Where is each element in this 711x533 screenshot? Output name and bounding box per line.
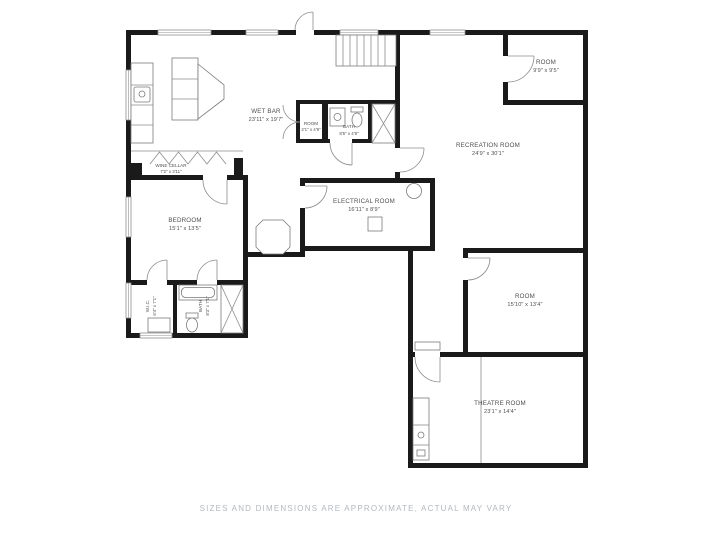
door-arcs	[147, 12, 534, 382]
room-name: THEATRE ROOM	[474, 400, 526, 407]
floor-plan-drawing: WET BAR 23'11" x 19'7" ROOM 2'1" x 4'9" …	[0, 0, 711, 533]
room-label-recreation: RECREATION ROOM 24'9" x 30'1"	[456, 142, 520, 157]
room-dims: 24'9" x 30'1"	[472, 151, 504, 157]
room-name: ROOM	[515, 293, 535, 300]
room-name: WINE CELLAR	[155, 163, 187, 168]
wic-dresser	[148, 318, 170, 332]
closet-x-lower	[221, 285, 243, 333]
room-name: ELECTRICAL ROOM	[333, 198, 395, 205]
room-label-theatre: THEATRE ROOM 23'1" x 14'4"	[474, 400, 526, 415]
room-name: WET BAR	[251, 108, 281, 115]
room-label-wine-cellar: WINE CELLAR 7'2" x 3'11"	[155, 163, 187, 174]
room-name: W.I.C.	[145, 300, 150, 313]
room-label-room-mid-right: ROOM 15'10" x 13'4"	[507, 293, 542, 308]
room-label-closet-room: ROOM 2'1" x 4'9"	[301, 121, 321, 132]
floor-plan-page: WET BAR 23'11" x 19'7" ROOM 2'1" x 4'9" …	[0, 0, 711, 533]
stairs	[336, 35, 396, 66]
bath-lower-toilet-icon	[186, 313, 198, 332]
kitchen-counter	[131, 63, 153, 143]
room-name: ROOM	[536, 59, 556, 66]
disclaimer-text: SIZES AND DIMENSIONS ARE APPROXIMATE, AC…	[200, 504, 513, 513]
room-dims: 8'3" x 7'1"	[205, 296, 210, 316]
kitchen-sink-icon	[134, 87, 150, 102]
room-label-electrical: ELECTRICAL ROOM 16'11" x 8'9"	[333, 198, 395, 213]
bathtub-icon	[179, 285, 217, 300]
room-name: BATH	[343, 124, 355, 129]
room-name: BEDROOM	[168, 217, 201, 224]
room-label-room-top-right: ROOM 9'9" x 9'5"	[533, 59, 559, 74]
room-label-bedroom: BEDROOM 15'1" x 13'5"	[168, 217, 201, 232]
theatre-cabinet	[413, 342, 481, 463]
room-name: RECREATION ROOM	[456, 142, 520, 149]
room-dims: 2'1" x 4'9"	[301, 127, 321, 132]
room-dims: 7'2" x 3'11"	[160, 169, 182, 174]
room-dims: 15'1" x 13'5"	[169, 226, 201, 232]
wine-rack-icon	[131, 151, 243, 164]
room-dims: 23'1" x 14'4"	[484, 409, 516, 415]
room-dims: 6'4" x 7'1"	[152, 296, 157, 316]
hall-table	[256, 220, 290, 254]
room-label-wic: W.I.C. 6'4" x 7'1"	[145, 296, 157, 316]
room-dims: 8'5" x 4'9"	[339, 131, 359, 136]
room-dims: 15'10" x 13'4"	[507, 302, 542, 308]
wet-bar-island	[172, 58, 224, 120]
room-dims: 9'9" x 9'5"	[533, 68, 559, 74]
furnace-icon	[368, 217, 382, 231]
room-name: BATH	[198, 300, 203, 312]
water-heater-icon	[407, 184, 422, 199]
room-name: ROOM	[304, 121, 318, 126]
closet-x-upper	[372, 104, 395, 143]
room-label-wet-bar: WET BAR 23'11" x 19'7"	[249, 108, 284, 123]
room-dims: 23'11" x 19'7"	[249, 117, 284, 123]
room-dims: 16'11" x 8'9"	[348, 207, 380, 213]
